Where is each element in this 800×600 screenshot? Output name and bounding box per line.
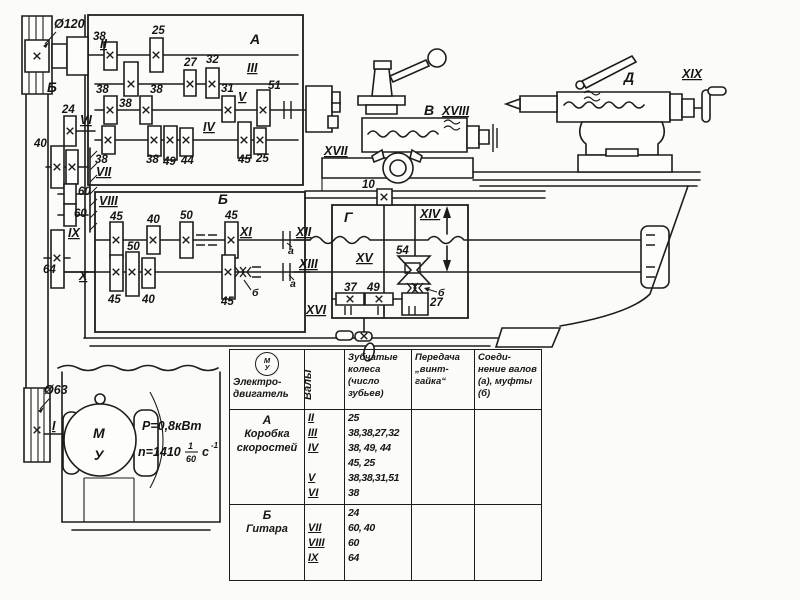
- shaft-cell-value: IV: [308, 442, 341, 457]
- section-b-guitar-label: Б: [218, 191, 228, 207]
- gear-label: 45: [237, 154, 251, 166]
- table-row-guitar: Б Гитара VII VIII IX 24 60, 40 60 64: [230, 505, 542, 581]
- gears-cell-value: 24: [348, 507, 408, 522]
- gear-label: 27: [183, 57, 197, 69]
- shaft-vii-label: VII: [96, 165, 112, 179]
- shaft-ix-label: IX: [68, 226, 80, 240]
- shaft-cell-value: II: [308, 412, 341, 427]
- gear-label: 38: [96, 84, 109, 96]
- shaft-cell-value: VII: [308, 522, 341, 537]
- shaft-cell-value: [308, 507, 341, 522]
- shaft-iii-label: III: [247, 61, 258, 75]
- gear-label: 45: [220, 296, 234, 308]
- header-gears-cell: Зубчатые колеса (число зубьев): [345, 350, 412, 410]
- shaft-cell-value: VIII: [308, 537, 341, 552]
- gear-label: 60: [74, 208, 87, 220]
- header-motor-line1: Электро-: [233, 377, 301, 389]
- shafts-a-cell: II III IV V VI: [305, 410, 345, 505]
- gears-cell-value: 25: [348, 412, 408, 427]
- gear-label: 40: [33, 138, 47, 150]
- gear-label: 50: [127, 241, 140, 253]
- motor-letter-u: У: [94, 447, 105, 463]
- shaft-xiii-label: XIII: [298, 257, 318, 271]
- apron: Г 10 54 27 б 37 49 XVI: [305, 179, 468, 362]
- gear-label: 44: [180, 155, 194, 167]
- electric-motor: М У I P=0,8кВт n=1410 1 60 с -1: [44, 366, 220, 531]
- couplings-a-cell: [475, 410, 542, 505]
- shaft-xix-label: XIX: [681, 67, 703, 81]
- shaft-xvii-label: XVII: [323, 144, 348, 158]
- group-b-letter: Б: [233, 509, 301, 521]
- gear-label: 45: [109, 211, 123, 223]
- gear-label: 45: [224, 210, 238, 222]
- shaft-cell-value: VI: [308, 487, 341, 502]
- shaft-ii-label: II: [100, 37, 107, 51]
- gears-cell-value: 38,38,27,32: [348, 427, 408, 442]
- motor-letter-m: М: [93, 425, 105, 441]
- shaft-xi-label: XI: [239, 225, 252, 239]
- motor-power-label: P=0,8кВт: [142, 419, 202, 433]
- gear-label: 38: [150, 84, 163, 96]
- carriage: XVII В XVIII: [322, 49, 497, 191]
- screwnut-a-cell: [412, 410, 475, 505]
- shaft-viii-label: VIII: [99, 194, 118, 208]
- gears-a-cell: 25 38,38,27,32 38, 49, 44 45, 25 38,38,3…: [345, 410, 412, 505]
- gear-label: 25: [151, 25, 165, 37]
- motor-speed-den: 60: [186, 454, 196, 464]
- lathe-kinematic-scheme: Ø120 Ø63 А: [0, 0, 800, 600]
- gears-cell-value: 64: [348, 552, 408, 567]
- motor-speed-num: 1: [188, 441, 193, 451]
- shaft-i-label: I: [52, 419, 56, 433]
- section-g-label: Г: [344, 209, 354, 225]
- gear-label: 24: [61, 104, 75, 116]
- gears-cell-value: 38, 49, 44: [348, 442, 408, 457]
- gear-label: 10: [362, 179, 375, 191]
- feed-rods: XII а XIII а XV XIV: [283, 206, 669, 290]
- gear-label: 37: [344, 282, 357, 294]
- screwnut-b-cell: [412, 505, 475, 581]
- table-row-gearbox: А Коробка скоростей II III IV V VI 25 38…: [230, 410, 542, 505]
- gear-label: 64: [43, 264, 56, 276]
- group-a-name1: Коробка: [233, 428, 301, 440]
- section-v-label: В: [424, 102, 434, 118]
- gears-cell-value: 45, 25: [348, 457, 408, 472]
- group-a-name2: скоростей: [233, 442, 301, 454]
- gear-label: 40: [141, 294, 155, 306]
- coupling-b-label: б: [252, 287, 259, 299]
- gear-label: 40: [146, 214, 160, 226]
- shaft-cell-value: V: [308, 472, 341, 487]
- shafts-b-cell: VII VIII IX: [305, 505, 345, 581]
- group-b-name1: Гитара: [233, 523, 301, 535]
- coupling-a-label: а: [290, 278, 296, 290]
- pulley-big-dim-label: Ø120: [54, 17, 85, 31]
- gear-label: 38: [146, 154, 159, 166]
- gear-label: 50: [180, 210, 193, 222]
- gears-cell-value: 60: [348, 537, 408, 552]
- shaft-x-label: X: [78, 269, 88, 283]
- shaft-cell-value: [308, 457, 341, 472]
- motor-speed-unit: с: [202, 445, 209, 459]
- shaft-v-label: V: [238, 90, 248, 104]
- gear-label: 25: [255, 153, 269, 165]
- gears-cell-value: 38: [348, 487, 408, 502]
- shaft-xvi-label: XVI: [305, 303, 327, 317]
- header-motor-cell: М У Электро- двигатель: [230, 350, 305, 410]
- gears-b-cell: 24 60, 40 60 64: [345, 505, 412, 581]
- shaft-xviii-label: XVIII: [441, 104, 470, 118]
- section-d-label: Д: [623, 69, 634, 85]
- header-shafts-label: Валы: [305, 367, 315, 400]
- gear-label: 38: [119, 98, 132, 110]
- gears-cell-value: 38,38,31,51: [348, 472, 408, 487]
- shaft-vi-label: VI: [80, 113, 92, 127]
- gear-label: 31: [221, 83, 234, 95]
- couplings-b-cell: [475, 505, 542, 581]
- gear-label: 32: [206, 54, 219, 66]
- section-b-label: Б: [47, 79, 57, 95]
- gear-label: 49: [366, 282, 380, 294]
- shaft-xii-label: XII: [295, 225, 312, 239]
- shaft-cell-value: III: [308, 427, 341, 442]
- feed-gearbox: Б VIII 45 40 50 45 50 45 40 45 XI б: [64, 191, 310, 332]
- group-b-cell: Б Гитара: [230, 505, 305, 581]
- section-a-label: А: [249, 31, 260, 47]
- motor-symbol-bottom: У: [264, 364, 269, 371]
- shaft-xv-label: XV: [355, 251, 374, 265]
- shaft-cell-value: IX: [308, 552, 341, 567]
- gear-label: 45: [107, 294, 121, 306]
- tailstock: Д XIX: [506, 56, 726, 172]
- table-header-row: М У Электро- двигатель Валы Зубчатые кол…: [230, 350, 542, 410]
- motor-speed-sup: -1: [211, 441, 219, 450]
- pulley-small-dim-label: Ø63: [44, 383, 68, 397]
- group-a-cell: А Коробка скоростей: [230, 410, 305, 505]
- coupling-b-label: б: [438, 287, 445, 299]
- shaft-xiv-label: XIV: [419, 207, 442, 221]
- header-couplings-cell: Соеди-нение валов (а), муфты (б): [475, 350, 542, 410]
- gears-cell-value: 60, 40: [348, 522, 408, 537]
- header-shafts-cell: Валы: [305, 350, 345, 410]
- chuck: [298, 86, 340, 132]
- gear-label: 49: [162, 156, 176, 168]
- group-a-letter: А: [233, 414, 301, 426]
- header-motor-line2: двигатель: [233, 389, 301, 401]
- kinematics-table: М У Электро- двигатель Валы Зубчатые кол…: [229, 349, 506, 581]
- gear-label: 54: [396, 245, 409, 257]
- header-screwnut-cell: Передача „винт-гайка“: [412, 350, 475, 410]
- gear-label: 51: [268, 80, 281, 92]
- motor-symbol-icon: М У: [255, 352, 279, 376]
- motor-speed-prefix: n=1410: [138, 445, 181, 459]
- shaft-iv-label: IV: [203, 120, 216, 134]
